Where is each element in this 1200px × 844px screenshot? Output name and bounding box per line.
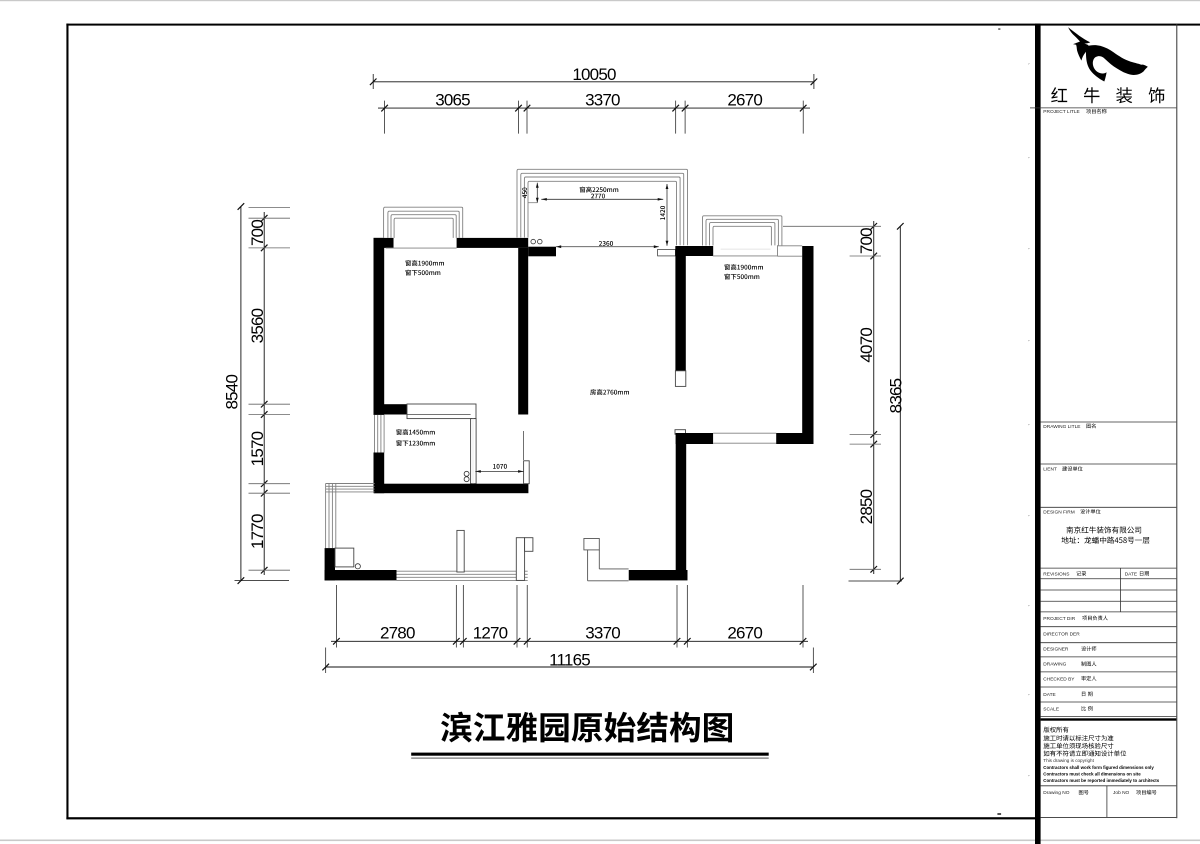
- svg-text:3560: 3560: [248, 308, 267, 343]
- svg-text:Contractors must check all dim: Contractors must check all dimensions on…: [1043, 771, 1141, 776]
- svg-text:DRAWING LITLE: DRAWING LITLE: [1043, 424, 1080, 430]
- svg-text:SCALE: SCALE: [1043, 706, 1059, 712]
- svg-text:3065: 3065: [435, 91, 470, 110]
- svg-text:⌐: ⌐: [1028, 514, 1030, 518]
- svg-text:700: 700: [857, 228, 876, 254]
- svg-text:Contractors shall work form fi: Contractors shall work form figured dime…: [1043, 765, 1154, 770]
- svg-text:⌐: ⌐: [1028, 247, 1030, 251]
- svg-text:3370: 3370: [585, 624, 620, 643]
- svg-text:2850: 2850: [857, 489, 876, 524]
- svg-text:⌐: ⌐: [1028, 62, 1030, 66]
- svg-text:REVISIONS: REVISIONS: [1043, 571, 1069, 577]
- svg-text:LIENT: LIENT: [1043, 467, 1057, 473]
- svg-text:1270: 1270: [473, 624, 508, 643]
- svg-text:8365: 8365: [887, 378, 906, 413]
- svg-text:700: 700: [248, 220, 267, 246]
- svg-text:DATE: DATE: [1125, 571, 1137, 577]
- svg-text:⌐: ⌐: [1028, 156, 1030, 160]
- svg-text:CHECKED BY: CHECKED BY: [1043, 676, 1075, 682]
- svg-text:PROJECT DIR: PROJECT DIR: [1043, 616, 1075, 622]
- svg-text:1770: 1770: [248, 514, 267, 549]
- svg-text:4070: 4070: [857, 328, 876, 363]
- svg-text:10050: 10050: [572, 65, 616, 84]
- svg-text:⌐: ⌐: [1028, 604, 1030, 608]
- svg-text:2670: 2670: [727, 91, 762, 110]
- svg-text:8540: 8540: [222, 375, 241, 410]
- svg-text:DIRECTOR DER: DIRECTOR DER: [1043, 632, 1080, 638]
- svg-text:1570: 1570: [248, 431, 267, 466]
- svg-text:Drawing NO: Drawing NO: [1043, 790, 1069, 796]
- svg-text:2780: 2780: [380, 624, 415, 643]
- svg-text:DATE: DATE: [1043, 692, 1055, 698]
- svg-text:⌐: ⌐: [1028, 774, 1030, 778]
- svg-text:⌐: ⌐: [1028, 339, 1030, 343]
- svg-text:2670: 2670: [727, 624, 762, 643]
- svg-text:DESIGN FIRM: DESIGN FIRM: [1043, 509, 1074, 515]
- svg-text:Contractors must be reported i: Contractors must be reported immediately…: [1043, 778, 1159, 783]
- svg-text:⌐: ⌐: [1028, 423, 1030, 427]
- svg-text:3370: 3370: [585, 91, 620, 110]
- svg-text:This drawing is copyright: This drawing is copyright: [1043, 758, 1094, 763]
- svg-text:Job NO: Job NO: [1113, 790, 1130, 796]
- svg-text:PROJECT LITLE: PROJECT LITLE: [1043, 109, 1079, 115]
- svg-text:DESIGNER: DESIGNER: [1043, 647, 1069, 653]
- svg-text:⌐: ⌐: [1028, 693, 1030, 697]
- svg-text:DRAWING: DRAWING: [1043, 662, 1066, 668]
